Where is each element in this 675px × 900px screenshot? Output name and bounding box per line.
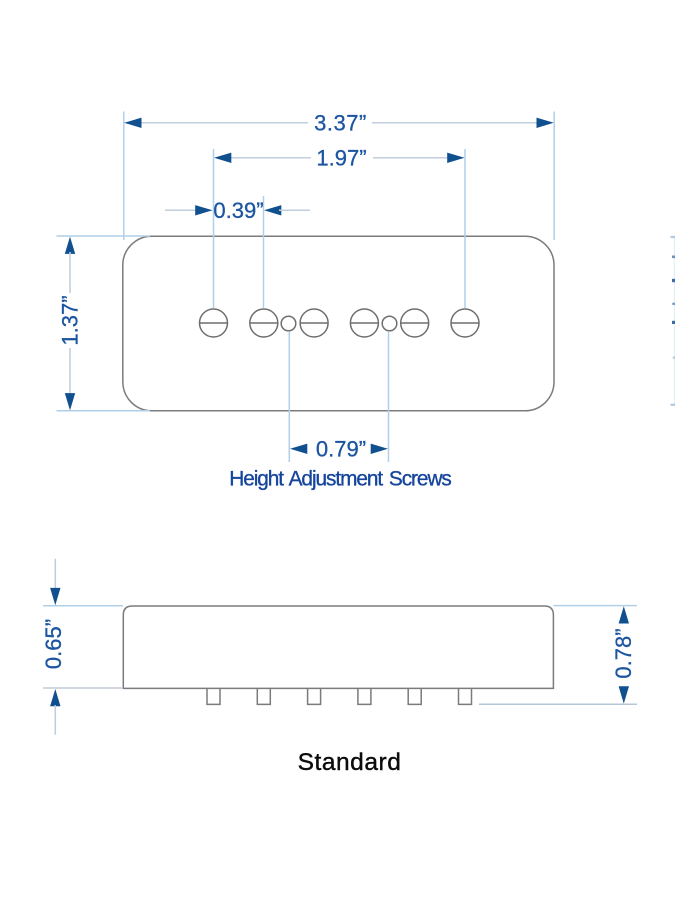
svg-text:0.39”: 0.39” bbox=[213, 198, 263, 223]
svg-text:0.65”: 0.65” bbox=[41, 619, 66, 669]
svg-text:0.78”: 0.78” bbox=[611, 628, 636, 678]
svg-text:1.37”: 1.37” bbox=[58, 295, 83, 345]
svg-text:Standard: Standard bbox=[298, 749, 402, 776]
svg-text:1.97”: 1.97” bbox=[316, 146, 366, 171]
svg-text:0.79”: 0.79” bbox=[316, 437, 366, 462]
svg-text:Height Adjustment Screws: Height Adjustment Screws bbox=[229, 468, 451, 491]
svg-text:3.37”: 3.37” bbox=[314, 111, 367, 136]
